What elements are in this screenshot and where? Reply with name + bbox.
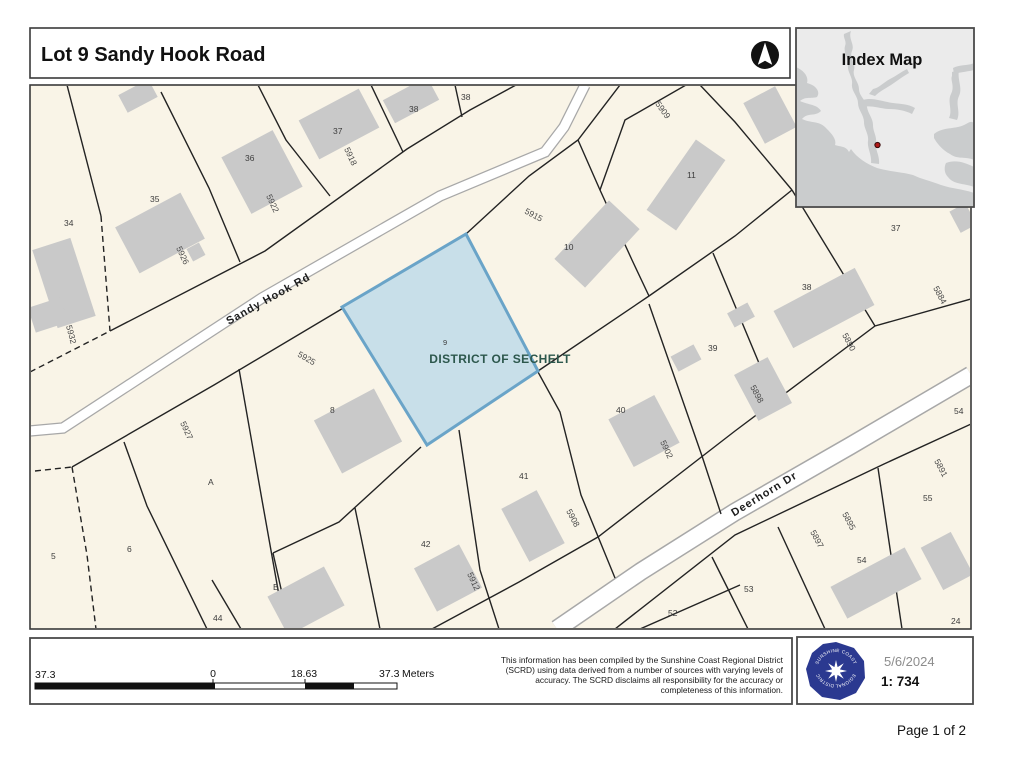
svg-text:53: 53 — [744, 584, 754, 594]
svg-text:37: 37 — [891, 223, 901, 233]
svg-text:54: 54 — [857, 555, 867, 565]
svg-text:39: 39 — [708, 343, 718, 353]
svg-text:37.3: 37.3 — [379, 668, 400, 680]
svg-text:Page 1 of 2: Page 1 of 2 — [897, 723, 966, 738]
svg-text:38: 38 — [802, 282, 812, 292]
svg-text:37.3: 37.3 — [35, 669, 56, 681]
svg-text:18.63: 18.63 — [291, 668, 317, 680]
svg-text:55: 55 — [923, 493, 933, 503]
svg-text:1: 734: 1: 734 — [881, 674, 920, 689]
svg-text:0: 0 — [210, 668, 216, 680]
svg-text:completeness of this informati: completeness of this information. — [661, 685, 783, 695]
svg-text:54: 54 — [954, 406, 964, 416]
svg-text:A: A — [208, 477, 214, 487]
svg-text:8: 8 — [330, 405, 335, 415]
svg-text:accuracy. The SCRD disclaims: accuracy. The SCRD disclaims all respons… — [535, 675, 783, 685]
svg-text:This information has been comp: This information has been compiled by th… — [501, 655, 784, 665]
svg-text:44: 44 — [213, 613, 223, 623]
svg-text:5: 5 — [51, 551, 56, 561]
svg-text:38: 38 — [461, 92, 471, 102]
svg-text:Meters: Meters — [402, 668, 434, 680]
svg-text:52: 52 — [668, 608, 678, 618]
svg-text:34: 34 — [64, 218, 74, 228]
svg-text:(SCRD) using data derived from: (SCRD) using data derived from a number … — [506, 665, 784, 675]
svg-text:B: B — [273, 582, 279, 592]
svg-text:11: 11 — [687, 170, 696, 180]
svg-text:40: 40 — [616, 405, 626, 415]
svg-text:24: 24 — [951, 616, 961, 626]
svg-text:6: 6 — [127, 544, 132, 554]
svg-text:10: 10 — [564, 242, 574, 252]
svg-text:42: 42 — [421, 539, 431, 549]
svg-text:9: 9 — [443, 338, 447, 347]
svg-text:41: 41 — [519, 471, 529, 481]
svg-text:Lot 9 Sandy Hook Road: Lot 9 Sandy Hook Road — [41, 44, 265, 66]
svg-text:DISTRICT OF SECHELT: DISTRICT OF SECHELT — [429, 352, 571, 366]
svg-text:5/6/2024: 5/6/2024 — [884, 654, 935, 669]
svg-text:Index Map: Index Map — [842, 51, 923, 69]
svg-text:37: 37 — [333, 126, 343, 136]
svg-text:35: 35 — [150, 194, 160, 204]
svg-text:38: 38 — [409, 104, 419, 114]
svg-text:36: 36 — [245, 153, 255, 163]
